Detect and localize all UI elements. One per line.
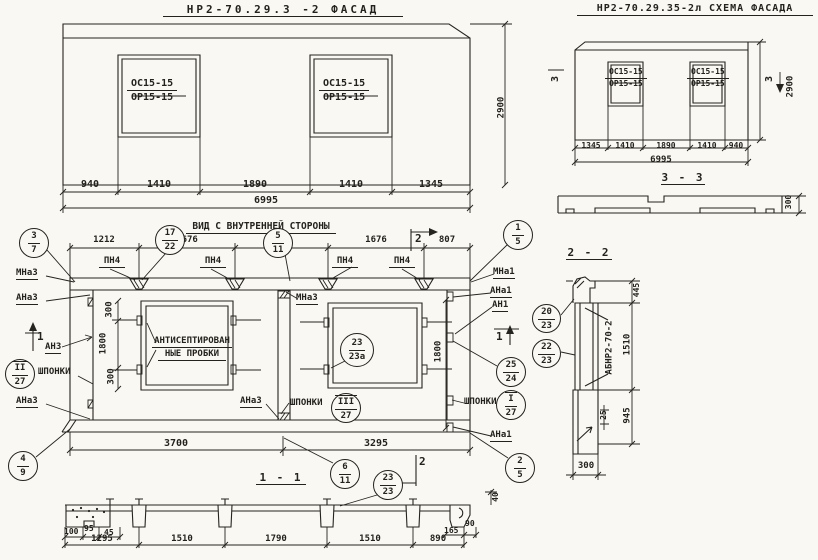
- facade-window-mark-right: ОС15-15 ОР15-15: [319, 77, 369, 103]
- window-type-top: ОС15-15: [319, 77, 369, 91]
- balloon-22-23: 2223: [532, 339, 561, 368]
- schema-dim: 1890: [648, 142, 684, 150]
- schema-window-mark-right: ОС15-15 ОР15-15: [687, 67, 729, 89]
- schema-title: НР2-70.29.35-2л СХЕМА ФАСАДА: [577, 4, 813, 16]
- section-2-2-dim: 945: [624, 399, 633, 433]
- view-dim-1800: 1800: [435, 334, 444, 370]
- view-bottom-dim: 3700: [146, 439, 206, 449]
- section-cut-2-top: 2: [415, 233, 422, 244]
- balloon-23-23a: 2323а: [340, 333, 374, 367]
- blueprint-sheet: НР2-70.29.3 -2 ФАСАД ОС15-15 ОР15-15 ОС1…: [0, 0, 818, 560]
- section-1-1-dim-small: 95: [84, 525, 94, 533]
- schema-dim: 1345: [573, 142, 609, 150]
- balloon-6-11: 611: [330, 459, 360, 489]
- schema-dim: 940: [718, 142, 754, 150]
- antiseptic-plugs-note-line2: НЫЕ ПРОБКИ: [158, 350, 226, 361]
- balloon-2-5: 25: [505, 453, 535, 483]
- section-2-2-dim: 1510: [624, 325, 633, 365]
- anchor-label-ana1: АНа1: [490, 287, 512, 298]
- facade-height-dim: 2900: [498, 88, 507, 128]
- facade-window-mark-left: ОС15-15 ОР15-15: [127, 77, 177, 103]
- antiseptic-plugs-note-line1: АНТИСЕПТИРОВАН: [152, 337, 232, 348]
- window-type-bottom: ОР15-15: [691, 79, 725, 89]
- balloon-17-22: 1722: [155, 225, 185, 255]
- view-top-dim: 807: [425, 236, 469, 245]
- panel-mark-abnr: АБНР2-70-2: [606, 309, 615, 387]
- keys-label-shponki: ШПОНКИ: [290, 399, 323, 408]
- balloon-3-7: 37: [19, 228, 49, 258]
- schema-window-mark-left: ОС15-15 ОР15-15: [605, 67, 647, 89]
- balloon-25-24: 2524: [496, 357, 526, 387]
- anchor-label-an1: АН1: [492, 301, 508, 312]
- section-1-1-dim: 1510: [346, 535, 394, 544]
- balloon-23-23: 2323: [373, 470, 403, 500]
- window-type-bottom: ОР15-15: [131, 91, 173, 103]
- anchor-label-mna1: МНа1: [493, 268, 515, 279]
- anchor-label-ana3: АНа3: [240, 397, 262, 408]
- facade-dim: 1410: [331, 180, 371, 190]
- anchor-label-an3: АН3: [45, 343, 61, 354]
- anchor-label-mna3: МНа3: [16, 269, 38, 280]
- balloon-I-27: I27: [496, 390, 526, 420]
- window-type-top: ОС15-15: [605, 67, 647, 79]
- anchor-label-ana3: АНа3: [16, 397, 38, 408]
- facade-title: НР2-70.29.3 -2 ФАСАД: [163, 4, 403, 17]
- section-1-1-dim-small: 90: [465, 520, 475, 528]
- schema-height-dim: 2900: [787, 67, 796, 107]
- section-1-1-dim: 890: [416, 535, 460, 544]
- balloon-4-9: 49: [8, 451, 38, 481]
- window-type-top: ОС15-15: [127, 77, 177, 91]
- section-1-1-dim-small: 100: [64, 528, 78, 536]
- section-1-1-dim-small: 165: [444, 527, 458, 535]
- view-dim-300: 300: [106, 295, 115, 325]
- view-dim-300: 300: [108, 362, 117, 392]
- view-bottom-dim: 3295: [346, 439, 406, 449]
- balloon-II-27: II27: [5, 359, 35, 389]
- anchor-label-ana3: АНа3: [16, 294, 38, 305]
- schema-dim: 1410: [607, 142, 643, 150]
- section-1-1-title: 1 - 1: [256, 472, 306, 485]
- window-type-bottom: ОР15-15: [609, 79, 643, 89]
- balloon-III-27: III27: [331, 393, 361, 423]
- section-2-2-dim: 445: [633, 275, 641, 305]
- window-type-bottom: ОР15-15: [323, 91, 365, 103]
- schema-total-dim: 6995: [641, 156, 681, 165]
- view-top-dim: 1676: [354, 236, 398, 245]
- anchor-label-mna3: МНа3: [296, 294, 318, 305]
- balloon-5-11: 511: [263, 228, 293, 258]
- view-dim-1800: 1800: [100, 326, 109, 362]
- loop-label-pn4: ПН4: [200, 257, 226, 268]
- window-type-top: ОС15-15: [687, 67, 729, 79]
- facade-dim: 940: [70, 180, 110, 190]
- facade-dim: 1890: [235, 180, 275, 190]
- section-cut-1-left: 1: [37, 331, 44, 342]
- section-cut-3-right: 3: [765, 69, 775, 89]
- keys-label-shponki: ШПОНКИ: [464, 398, 497, 407]
- section-3-3-title: 3 - 3: [661, 172, 705, 185]
- section-1-1-dim-small: 40: [492, 487, 500, 507]
- loop-label-pn4: ПН4: [99, 257, 125, 268]
- section-2-2-dim: 25: [600, 405, 608, 425]
- inner-view-title: ВИД С ВНУТРЕННЕЙ СТОРОНЫ: [186, 222, 336, 234]
- loop-label-pn4: ПН4: [389, 257, 415, 268]
- facade-dim: 1410: [139, 180, 179, 190]
- facade-dim: 1345: [411, 180, 451, 190]
- section-1-1-dim: 1790: [252, 535, 300, 544]
- view-top-dim: 1212: [82, 236, 126, 245]
- section-2-2-title: 2 - 2: [566, 247, 612, 260]
- facade-total-dim: 6995: [236, 196, 296, 206]
- section-cut-1-right: 1: [496, 331, 503, 342]
- section-3-3-depth-dim: 300: [785, 187, 793, 217]
- anchor-label-ana1: АНа1: [490, 431, 512, 442]
- loop-label-pn4: ПН4: [332, 257, 358, 268]
- section-cut-3-left: 3: [551, 69, 561, 89]
- section-1-1-dim: 1295: [78, 535, 126, 544]
- balloon-20-23: 2023: [532, 304, 561, 333]
- keys-label-shponki: ШПОНКИ: [38, 368, 71, 377]
- section-cut-2-bottom: 2: [419, 456, 426, 467]
- balloon-1-5: 15: [503, 220, 533, 250]
- section-1-1-dim-small: 45: [104, 529, 114, 537]
- section-2-2-dim: 300: [570, 462, 602, 471]
- section-1-1-dim: 1510: [158, 535, 206, 544]
